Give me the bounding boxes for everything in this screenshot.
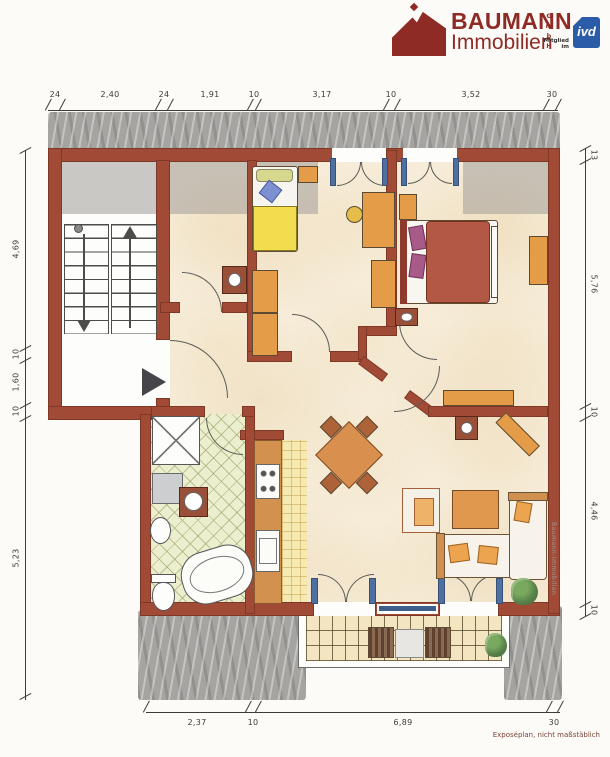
dim-label: 24	[50, 90, 61, 99]
dim-label: 2,37	[187, 718, 206, 727]
door-jamb	[330, 158, 336, 186]
dim-label: 5,23	[12, 548, 21, 567]
balcony-door-opening	[332, 148, 386, 162]
small-basin	[150, 517, 171, 544]
desk	[362, 192, 395, 248]
dim-label: 6,89	[393, 718, 412, 727]
armchair-cushion	[414, 498, 434, 526]
ivd-badge-text: ivd	[577, 24, 596, 39]
bedside-table	[399, 194, 417, 220]
wall-left	[48, 148, 62, 420]
logo: BAUMANN Immobilien GmbH Mitglied im ivd	[385, 4, 605, 62]
kitchen-floor	[282, 440, 307, 604]
sofa-pillow	[477, 545, 499, 565]
coffee-table	[452, 490, 499, 529]
roof-slope-area-bedroom	[463, 162, 548, 214]
balcony-chair	[368, 627, 394, 658]
entrance-arrow-icon	[142, 368, 166, 396]
logo-gmbh: GmbH	[545, 12, 553, 58]
stairs-up-arrow-icon	[123, 226, 137, 238]
kitchen-sink-basin	[259, 538, 277, 564]
door-jamb	[401, 158, 407, 186]
sideboard	[443, 390, 514, 406]
dim-label: 5,76	[590, 274, 599, 293]
wall-top	[48, 148, 560, 162]
ivd-badge: ivd	[573, 17, 600, 48]
balcony-door-opening	[403, 148, 457, 162]
wall-jog-horizontal	[362, 326, 397, 336]
nightstand	[298, 166, 318, 183]
dimension-line-left	[25, 150, 26, 700]
bed-blanket	[426, 221, 490, 303]
chimney-icon	[222, 266, 247, 294]
dim-label: 30	[547, 90, 558, 99]
concrete-block-bottom-right	[504, 606, 562, 700]
cooktop	[256, 464, 280, 499]
dim-label: 1,60	[12, 372, 21, 391]
dim-label: 24	[159, 90, 170, 99]
dim-label: 10	[248, 718, 259, 727]
sofa-pillow	[513, 501, 532, 523]
dimension-line-right	[585, 148, 586, 616]
dim-label: 10	[386, 90, 397, 99]
dim-label: 10	[590, 605, 599, 616]
stairs-up-guide	[129, 238, 131, 328]
sofa-armrest	[508, 492, 548, 501]
bed-headrest-pillow	[256, 169, 293, 182]
chest-of-drawers	[371, 260, 396, 308]
bed-headboard	[400, 220, 407, 304]
logo-brand-line1: BAUMANN	[451, 10, 572, 32]
dresser	[529, 236, 548, 285]
floor-plan-page: BAUMANN Immobilien GmbH Mitglied im ivd	[0, 0, 610, 757]
dimension-line-top	[48, 110, 558, 111]
door-jamb	[453, 158, 459, 186]
wall-bathroom-north-2	[242, 406, 255, 417]
stairs-down-arrow-icon	[77, 320, 91, 332]
dim-label: 10	[249, 90, 260, 99]
dim-label: 4,69	[12, 239, 21, 258]
sofa-armrest	[436, 533, 445, 579]
wall-stairwell-right	[156, 160, 170, 340]
wall-bedroom-south	[428, 406, 548, 417]
dim-label: 3,52	[461, 90, 480, 99]
dim-label: 13	[590, 150, 599, 161]
toilet-bowl	[152, 582, 175, 611]
dim-label: 2,40	[100, 90, 119, 99]
logo-house-icon	[392, 10, 446, 56]
dim-label: 4,46	[590, 501, 599, 520]
watermark: Baumann-Immobilien	[550, 522, 557, 612]
ivd-badge-fold	[573, 17, 582, 26]
dim-label: 30	[549, 718, 560, 727]
dim-label: 3,17	[312, 90, 331, 99]
wall-room-a-south-2	[222, 302, 247, 313]
wall-room-a-south-1	[160, 302, 180, 313]
chimney-icon	[455, 416, 478, 440]
sofa-pillow	[448, 543, 470, 564]
concrete-block-bottom-left	[138, 610, 306, 700]
logo-heart-icon	[410, 3, 418, 11]
logo-membership-label: Mitglied im	[535, 38, 569, 50]
wall-jog-vertical	[358, 326, 367, 360]
dimension-line-bottom	[146, 712, 560, 713]
bed-foot-bench	[491, 226, 498, 298]
balcony-table	[395, 629, 424, 658]
desk-stool	[346, 206, 363, 223]
balcony-door-opening	[314, 602, 375, 616]
wall-bathroom-west	[140, 414, 151, 614]
shower	[152, 416, 200, 465]
footnote: Exposéplan, nicht maßstäblich	[460, 731, 600, 739]
plant-icon	[511, 578, 538, 605]
balcony-chair	[425, 627, 451, 658]
dim-label: 10	[12, 349, 21, 360]
staircase-center-rail	[108, 224, 112, 334]
wardrobe	[252, 270, 278, 356]
balcony-plant-icon	[485, 633, 507, 657]
balcony-door-opening	[440, 602, 498, 616]
dim-label: 1,91	[200, 90, 219, 99]
dim-label: 10	[12, 406, 21, 417]
window-glass	[379, 606, 436, 611]
wall-landing-south	[48, 406, 152, 420]
washbasin	[184, 492, 203, 511]
stairs-down-guide	[83, 234, 85, 320]
bed-blanket	[253, 206, 297, 251]
dim-label: 10	[590, 407, 599, 418]
staircase-newel-dot	[74, 224, 83, 233]
door-jamb	[311, 578, 318, 604]
